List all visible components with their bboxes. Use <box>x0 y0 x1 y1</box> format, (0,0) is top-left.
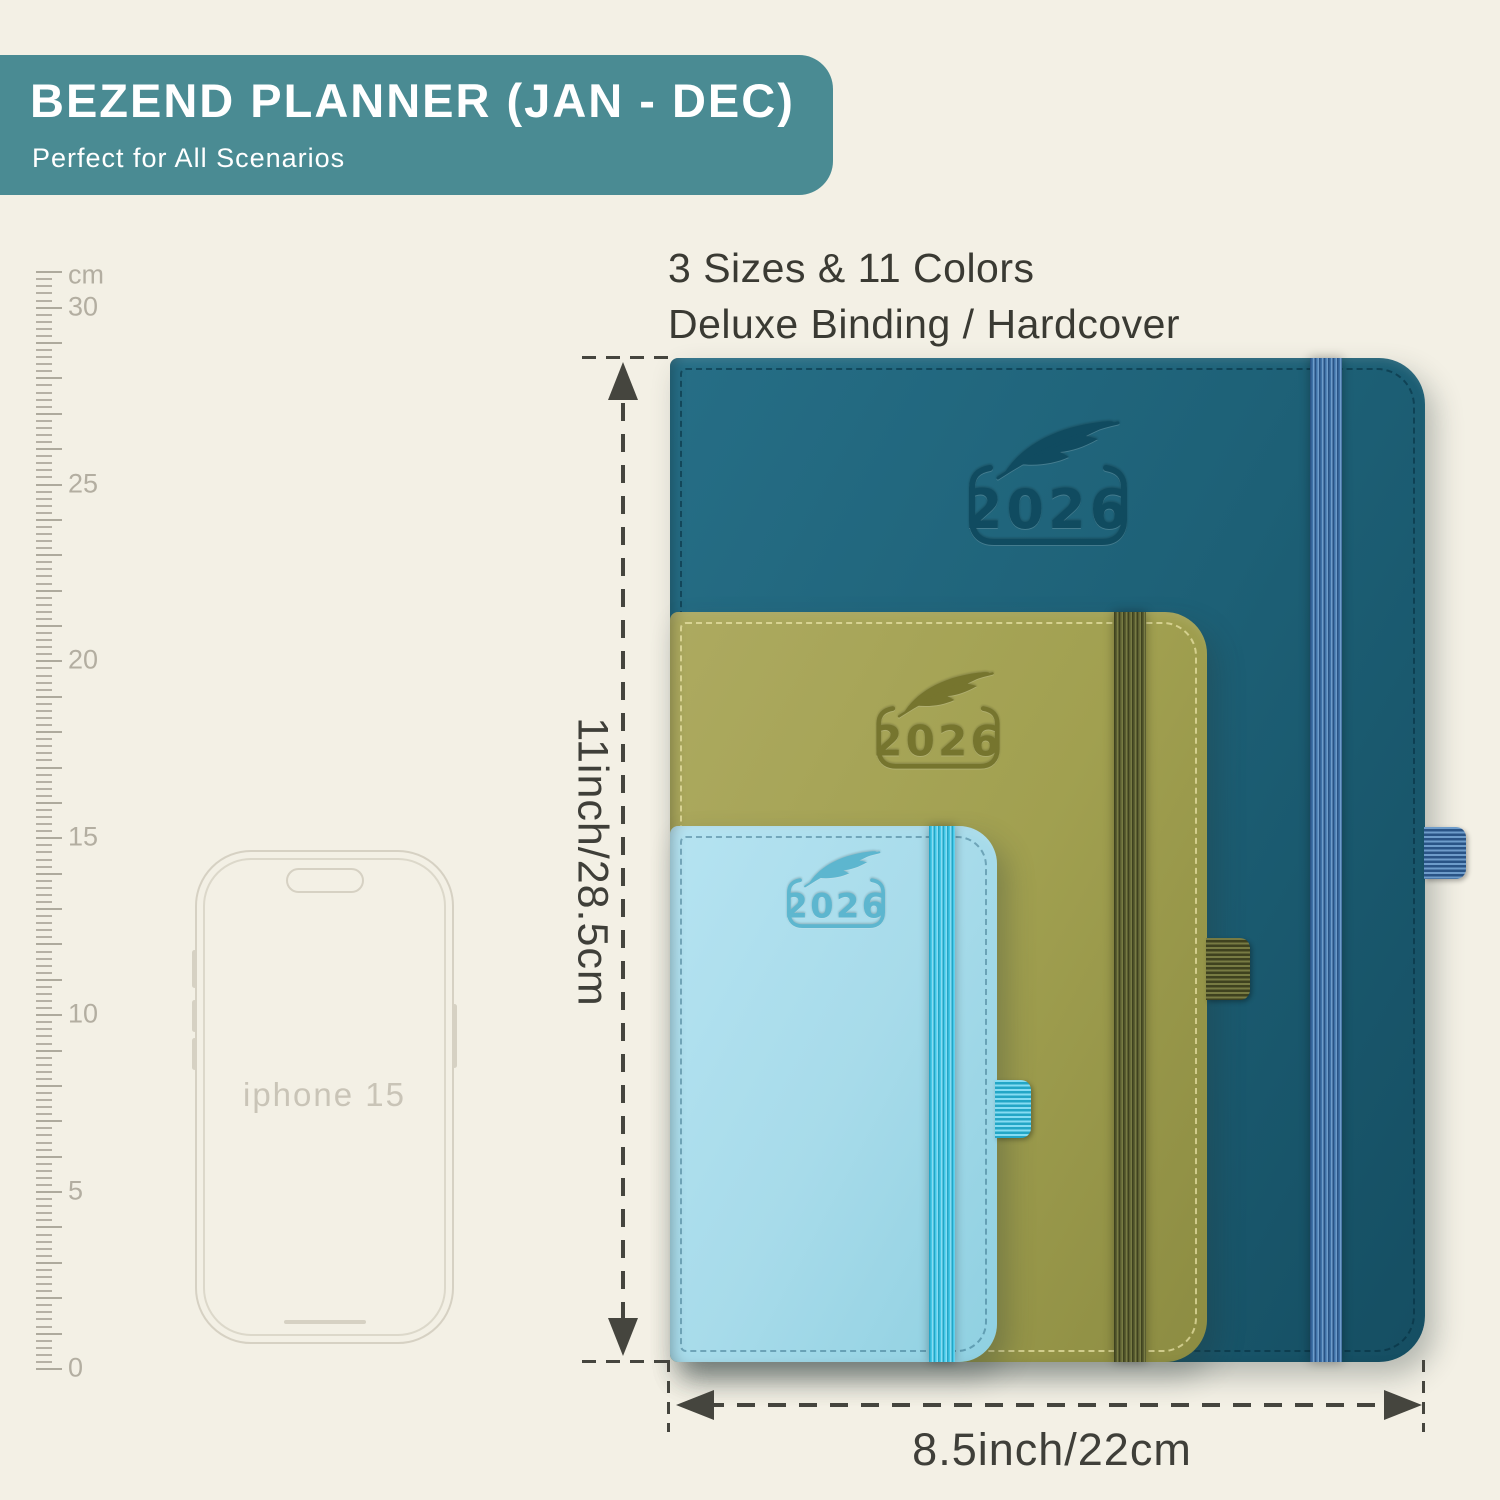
ruler-tick <box>36 1198 52 1200</box>
ruler-tick <box>36 1290 52 1292</box>
ruler-tick <box>36 1326 52 1328</box>
ruler-tick <box>36 384 52 386</box>
ruler-tick <box>36 922 52 924</box>
ruler-tick <box>36 972 52 974</box>
ruler-tick <box>36 1092 52 1094</box>
ruler-tick <box>36 1354 52 1356</box>
ruler-tick <box>36 1106 52 1108</box>
ruler-tick <box>36 1113 52 1115</box>
ruler-tick <box>36 625 62 627</box>
ruler-tick <box>36 1255 52 1257</box>
ruler-tick <box>36 568 52 570</box>
ruler-tick <box>36 335 52 337</box>
ruler-tick <box>36 1226 62 1228</box>
ruler-tick <box>36 795 52 797</box>
ruler-tick <box>36 1191 62 1193</box>
ruler-label: 15 <box>68 822 98 853</box>
ruler-tick <box>36 646 52 648</box>
ruler-tick <box>36 703 52 705</box>
ruler-tick <box>36 1304 52 1306</box>
ruler-tick <box>36 844 52 846</box>
ruler-tick <box>36 1234 52 1236</box>
pen-loop-large <box>1424 827 1466 879</box>
ruler-tick <box>36 1361 52 1363</box>
logo-graphic: 2026 <box>774 848 898 941</box>
ruler-tick <box>36 526 52 528</box>
ruler-tick <box>36 547 52 549</box>
ruler-tick <box>36 710 52 712</box>
ruler-tick <box>36 1297 62 1299</box>
ruler-tick <box>36 1318 52 1320</box>
ruler-tick <box>36 583 52 585</box>
height-dimension-top-cap <box>582 356 670 359</box>
ruler-tick <box>36 1078 52 1080</box>
ruler-tick <box>36 561 52 563</box>
ruler-tick <box>36 724 52 726</box>
ruler-tick <box>36 851 52 853</box>
ruler-tick <box>36 1212 52 1214</box>
ruler-tick <box>36 837 62 839</box>
ruler-tick <box>36 321 52 323</box>
ruler-tick <box>36 476 52 478</box>
ruler-tick <box>36 505 52 507</box>
ruler-tick <box>36 300 52 302</box>
ruler-tick <box>36 392 52 394</box>
ruler-tick <box>36 1064 52 1066</box>
ruler-tick <box>36 1205 52 1207</box>
ruler-tick <box>36 823 52 825</box>
ruler-tick <box>36 1142 52 1144</box>
ruler-tick <box>36 597 52 599</box>
ruler-tick <box>36 1085 62 1087</box>
ruler-tick <box>36 675 52 677</box>
ruler-tick <box>36 285 52 287</box>
ruler-tick <box>36 1000 52 1002</box>
ruler-label: 20 <box>68 645 98 676</box>
ruler-tick <box>36 958 52 960</box>
ruler-tick <box>36 689 52 691</box>
phone-speaker-slot <box>284 1320 366 1324</box>
iphone-outline: iphone 15 <box>195 850 454 1344</box>
ruler-tick <box>36 908 62 910</box>
ruler-tick <box>36 618 52 620</box>
ruler-tick <box>36 533 52 535</box>
pen-loop-medium <box>1206 938 1250 1000</box>
ruler-tick <box>36 1035 52 1037</box>
ruler-tick <box>36 1177 52 1179</box>
ruler-tick <box>36 986 52 988</box>
feature-line-binding: Deluxe Binding / Hardcover <box>668 296 1180 352</box>
ruler-tick <box>36 929 52 931</box>
ruler: 302520151050cm <box>0 0 160 1500</box>
year-emboss: 2026 <box>965 478 1131 541</box>
ruler-tick <box>36 491 52 493</box>
ruler-tick <box>36 590 62 592</box>
ruler-tick <box>36 406 52 408</box>
width-dimension-left-cap <box>667 1360 670 1432</box>
ruler-tick <box>36 1241 52 1243</box>
ruler-tick <box>36 399 52 401</box>
embossed-logo: 2026 <box>948 416 1148 566</box>
ruler-tick <box>36 1021 52 1023</box>
width-dimension-right-cap <box>1422 1360 1425 1432</box>
ruler-tick <box>36 1043 52 1045</box>
ruler-tick <box>36 377 62 379</box>
ruler-tick <box>36 1028 52 1030</box>
ruler-tick <box>36 1050 62 1052</box>
arrow-left-icon <box>676 1390 714 1420</box>
ruler-tick <box>36 809 52 811</box>
embossed-logo: 2026 <box>774 848 898 941</box>
ruler-tick <box>36 887 52 889</box>
year-emboss: 2026 <box>873 716 1003 765</box>
ruler-tick <box>36 696 62 698</box>
ruler-tick <box>36 717 52 719</box>
ruler-tick <box>36 943 62 945</box>
ruler-tick <box>36 660 62 662</box>
ruler-label: 10 <box>68 999 98 1030</box>
ruler-tick <box>36 356 52 358</box>
phone-label: iphone 15 <box>197 1076 452 1114</box>
ruler-tick <box>36 639 52 641</box>
ruler-tick <box>36 271 62 273</box>
ruler-tick <box>36 328 52 330</box>
ruler-tick <box>36 1276 52 1278</box>
height-dimension-label: 11inch/28.5cm <box>568 717 617 1006</box>
width-dimension-line <box>706 1403 1398 1407</box>
ruler-tick <box>36 1333 62 1335</box>
ruler-tick <box>36 455 52 457</box>
ruler-label: 0 <box>68 1353 83 1384</box>
ruler-tick <box>36 880 52 882</box>
ruler-tick <box>36 307 62 309</box>
ruler-tick <box>36 667 52 669</box>
ruler-tick <box>36 682 52 684</box>
ruler-tick <box>36 738 52 740</box>
ruler-tick <box>36 498 52 500</box>
height-dimension-line <box>621 372 625 1350</box>
pen-loop-small <box>995 1080 1031 1138</box>
ruler-tick <box>36 1156 62 1158</box>
ruler-tick <box>36 1262 62 1264</box>
ruler-tick <box>36 427 52 429</box>
year-emboss: 2026 <box>784 886 887 925</box>
ruler-tick <box>36 915 52 917</box>
ruler-tick <box>36 767 62 769</box>
ruler-tick <box>36 1007 52 1009</box>
ruler-tick <box>36 1340 52 1342</box>
ruler-tick <box>36 979 62 981</box>
ruler-tick <box>36 802 62 804</box>
ruler-tick <box>36 745 52 747</box>
arrow-down-icon <box>608 1318 638 1356</box>
ruler-tick <box>36 469 52 471</box>
width-dimension-label: 8.5inch/22cm <box>912 1424 1192 1476</box>
dynamic-island <box>286 868 364 893</box>
product-infographic: BEZEND PLANNER (JAN - DEC) Perfect for A… <box>0 0 1500 1500</box>
ruler-tick <box>36 653 52 655</box>
feature-text: 3 Sizes & 11 Colors Deluxe Binding / Har… <box>668 240 1180 352</box>
ruler-tick <box>36 901 52 903</box>
phone-power-button <box>452 1004 457 1068</box>
elastic-band-medium <box>1114 612 1146 1362</box>
ruler-tick <box>36 859 52 861</box>
ruler-tick <box>36 632 52 634</box>
ruler-tick <box>36 611 52 613</box>
ruler-label: 25 <box>68 468 98 499</box>
ruler-tick <box>36 788 52 790</box>
embossed-logo: 2026 <box>860 668 1016 785</box>
ruler-tick <box>36 554 62 556</box>
logo-graphic: 2026 <box>860 668 1016 785</box>
ruler-tick <box>36 1127 52 1129</box>
ruler-tick <box>36 866 52 868</box>
ruler-tick <box>36 441 52 443</box>
feature-line-sizes: 3 Sizes & 11 Colors <box>668 240 1180 296</box>
ruler-tick <box>36 1368 62 1370</box>
arrow-up-icon <box>608 362 638 400</box>
ruler-tick <box>36 759 52 761</box>
ruler-tick <box>36 1120 62 1122</box>
ruler-tick <box>36 1311 52 1313</box>
ruler-tick <box>36 278 52 280</box>
ruler-tick <box>36 993 52 995</box>
ruler-tick <box>36 816 52 818</box>
ruler-tick <box>36 1099 52 1101</box>
ruler-tick <box>36 434 52 436</box>
ruler-tick <box>36 894 52 896</box>
ruler-tick <box>36 1269 52 1271</box>
ruler-tick <box>36 349 52 351</box>
phone-volume-up-button <box>192 1000 197 1032</box>
ruler-tick <box>36 1184 52 1186</box>
ruler-tick <box>36 936 52 938</box>
ruler-label: 5 <box>68 1176 83 1207</box>
ruler-tick <box>36 965 52 967</box>
ruler-tick <box>36 774 52 776</box>
ruler-label: 30 <box>68 291 98 322</box>
ruler-tick <box>36 420 52 422</box>
ruler-tick <box>36 1347 52 1349</box>
ruler-tick <box>36 512 52 514</box>
ruler-tick <box>36 1071 52 1073</box>
elastic-band-small <box>929 826 955 1362</box>
ruler-tick <box>36 1163 52 1165</box>
ruler-tick <box>36 484 62 486</box>
ruler-tick <box>36 575 52 577</box>
elastic-band-large <box>1310 358 1342 1362</box>
ruler-tick <box>36 1057 52 1059</box>
ruler-tick <box>36 448 62 450</box>
ruler-tick <box>36 731 62 733</box>
ruler-tick <box>36 540 52 542</box>
ruler-tick <box>36 1283 52 1285</box>
ruler-tick <box>36 413 62 415</box>
ruler-tick <box>36 951 52 953</box>
ruler-tick <box>36 519 62 521</box>
ruler-tick <box>36 314 52 316</box>
ruler-tick <box>36 1014 62 1016</box>
ruler-tick <box>36 1149 52 1151</box>
ruler-tick <box>36 1134 52 1136</box>
ruler-tick <box>36 370 52 372</box>
ruler-tick <box>36 752 52 754</box>
logo-graphic: 2026 <box>948 416 1148 566</box>
ruler-tick <box>36 1219 52 1221</box>
ruler-tick <box>36 462 52 464</box>
phone-volume-down-button <box>192 1038 197 1070</box>
phone-action-button <box>192 950 197 988</box>
ruler-tick <box>36 830 52 832</box>
ruler-tick <box>36 1248 52 1250</box>
ruler-unit-label: cm <box>68 260 104 291</box>
ruler-tick <box>36 292 52 294</box>
ruler-tick <box>36 1170 52 1172</box>
height-dimension-bottom-cap <box>582 1360 670 1363</box>
ruler-tick <box>36 363 52 365</box>
ruler-tick <box>36 873 62 875</box>
ruler-tick <box>36 781 52 783</box>
ruler-tick <box>36 604 52 606</box>
ruler-tick <box>36 342 62 344</box>
arrow-right-icon <box>1384 1390 1422 1420</box>
